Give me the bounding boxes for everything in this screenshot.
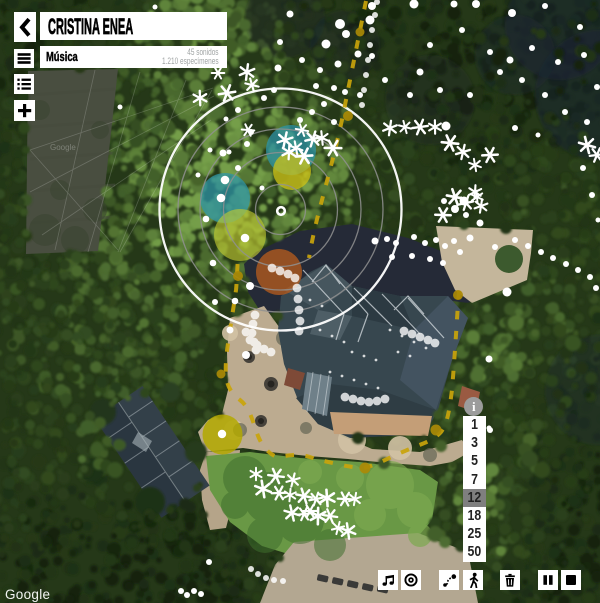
svg-text:Google: Google xyxy=(50,143,76,152)
